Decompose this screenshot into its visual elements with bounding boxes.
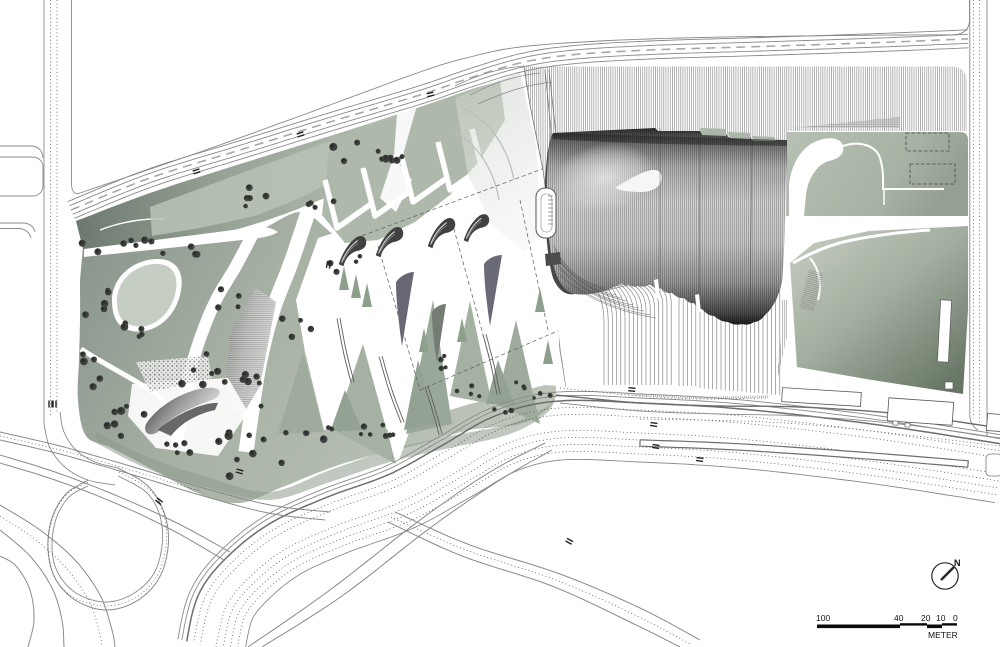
- svg-text:N: N: [954, 558, 961, 568]
- svg-text:40: 40: [894, 613, 904, 623]
- svg-text:20: 20: [921, 613, 931, 623]
- svg-text:10: 10: [936, 613, 946, 623]
- svg-text:METER: METER: [928, 630, 958, 640]
- svg-text:0: 0: [953, 613, 958, 623]
- svg-text:100: 100: [816, 613, 830, 623]
